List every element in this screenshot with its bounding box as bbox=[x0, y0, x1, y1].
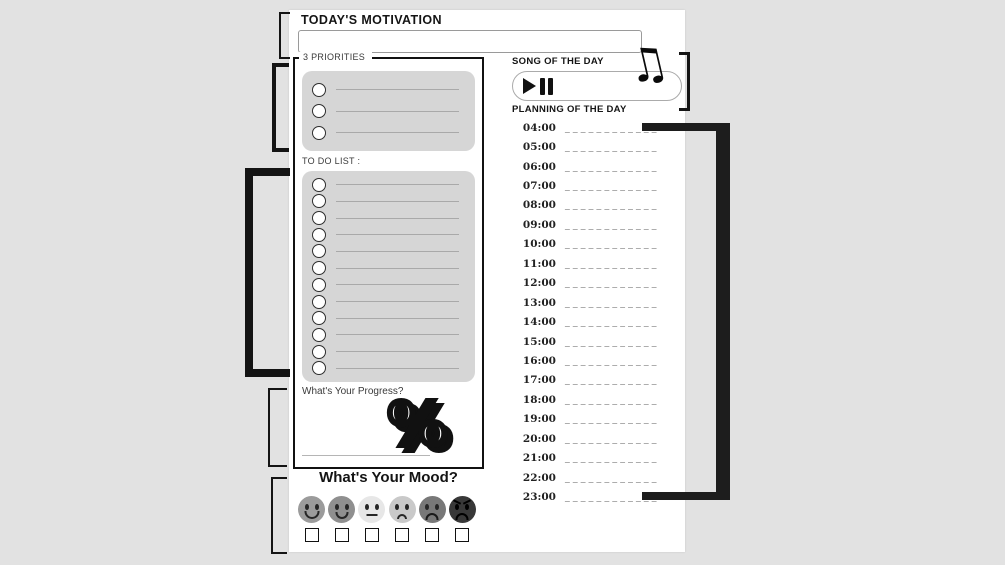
write-line bbox=[336, 334, 459, 335]
time-slot-row: 09:00 _ _ _ _ _ _ _ _ _ _ _ _ bbox=[518, 215, 657, 234]
time-label: 15:00 bbox=[518, 336, 556, 348]
todo-circle[interactable] bbox=[312, 361, 326, 375]
eye-icon bbox=[425, 504, 429, 511]
todo-row bbox=[312, 361, 465, 375]
write-line bbox=[336, 251, 459, 252]
eye-icon bbox=[435, 504, 439, 511]
time-slot-row: 17:00 _ _ _ _ _ _ _ _ _ _ _ _ bbox=[518, 371, 657, 390]
mood-option[interactable] bbox=[389, 496, 416, 542]
eye-icon bbox=[375, 504, 379, 511]
todo-row bbox=[312, 244, 465, 258]
priority-row bbox=[312, 104, 465, 118]
eye-icon bbox=[305, 504, 309, 511]
todo-circle[interactable] bbox=[312, 244, 326, 258]
write-line bbox=[336, 234, 459, 235]
time-slot-row: 22:00 _ _ _ _ _ _ _ _ _ _ _ _ bbox=[518, 468, 657, 487]
time-label: 16:00 bbox=[518, 355, 556, 367]
write-line bbox=[336, 368, 459, 369]
todo-circle[interactable] bbox=[312, 261, 326, 275]
eyebrow-icon bbox=[453, 499, 461, 505]
bracket-planning bbox=[642, 123, 730, 500]
eye-icon bbox=[395, 504, 399, 511]
eye-icon bbox=[345, 504, 349, 511]
time-slot-row: 14:00 _ _ _ _ _ _ _ _ _ _ _ _ bbox=[518, 312, 657, 331]
todo-row bbox=[312, 211, 465, 225]
mood-option[interactable] bbox=[328, 496, 355, 542]
mood-option[interactable] bbox=[298, 496, 325, 542]
time-label: 13:00 bbox=[518, 297, 556, 309]
todo-box bbox=[302, 171, 475, 382]
todo-row bbox=[312, 278, 465, 292]
todo-row bbox=[312, 178, 465, 192]
eye-icon bbox=[465, 504, 469, 511]
todo-row bbox=[312, 194, 465, 208]
todo-circle[interactable] bbox=[312, 194, 326, 208]
eye-icon bbox=[405, 504, 409, 511]
time-slot-row: 16:00 _ _ _ _ _ _ _ _ _ _ _ _ bbox=[518, 351, 657, 370]
mouth-icon bbox=[366, 514, 377, 516]
song-title: SONG OF THE DAY bbox=[512, 56, 604, 67]
eye-icon bbox=[335, 504, 339, 511]
write-line bbox=[336, 284, 459, 285]
mood-face-icon[interactable] bbox=[389, 496, 416, 523]
percent-icon: % % bbox=[388, 389, 478, 465]
time-slot-row: 20:00 _ _ _ _ _ _ _ _ _ _ _ _ bbox=[518, 429, 657, 448]
time-slot-row: 19:00 _ _ _ _ _ _ _ _ _ _ _ _ bbox=[518, 410, 657, 429]
todo-row bbox=[312, 328, 465, 342]
mood-row bbox=[298, 496, 476, 542]
todo-circle[interactable] bbox=[312, 211, 326, 225]
priority-row bbox=[312, 126, 465, 140]
todo-circle[interactable] bbox=[312, 228, 326, 242]
mood-checkbox[interactable] bbox=[425, 528, 439, 542]
mood-title: What's Your Mood? bbox=[293, 469, 484, 486]
todo-row bbox=[312, 311, 465, 325]
todo-circle[interactable] bbox=[312, 328, 326, 342]
time-label: 18:00 bbox=[518, 394, 556, 406]
time-label: 09:00 bbox=[518, 219, 556, 231]
write-line bbox=[336, 301, 459, 302]
mood-option[interactable] bbox=[449, 496, 476, 542]
time-slot-row: 10:00 _ _ _ _ _ _ _ _ _ _ _ _ bbox=[518, 235, 657, 254]
mouth-icon bbox=[304, 511, 319, 519]
todo-row bbox=[312, 261, 465, 275]
write-line bbox=[336, 351, 459, 352]
write-line bbox=[336, 201, 459, 202]
mood-option[interactable] bbox=[358, 496, 385, 542]
write-line bbox=[336, 268, 459, 269]
time-label: 19:00 bbox=[518, 413, 556, 425]
time-slot-row: 04:00 _ _ _ _ _ _ _ _ _ _ _ _ bbox=[518, 118, 657, 137]
todo-circle[interactable] bbox=[312, 178, 326, 192]
time-slot-row: 05:00 _ _ _ _ _ _ _ _ _ _ _ _ bbox=[518, 137, 657, 156]
mood-checkbox[interactable] bbox=[365, 528, 379, 542]
time-slot-row: 23:00 _ _ _ _ _ _ _ _ _ _ _ _ bbox=[518, 487, 657, 506]
bracket-smart-goals bbox=[272, 63, 289, 152]
time-label: 05:00 bbox=[518, 141, 556, 153]
mood-checkbox[interactable] bbox=[305, 528, 319, 542]
time-label: 20:00 bbox=[518, 433, 556, 445]
time-slot-row: 21:00 _ _ _ _ _ _ _ _ _ _ _ _ bbox=[518, 448, 657, 467]
time-label: 22:00 bbox=[518, 472, 556, 484]
todo-row bbox=[312, 295, 465, 309]
eye-icon bbox=[365, 504, 369, 511]
todo-row bbox=[312, 345, 465, 359]
todo-row bbox=[312, 228, 465, 242]
bracket-progress bbox=[268, 388, 287, 467]
planning-title: PLANNING OF THE DAY bbox=[512, 104, 627, 115]
time-slot-row: 06:00 _ _ _ _ _ _ _ _ _ _ _ _ bbox=[518, 157, 657, 176]
motivation-input[interactable] bbox=[298, 30, 642, 53]
time-label: 10:00 bbox=[518, 238, 556, 250]
mouth-icon bbox=[397, 514, 407, 519]
bracket-music bbox=[679, 52, 690, 111]
mouth-icon bbox=[335, 512, 348, 519]
time-slot-row: 08:00 _ _ _ _ _ _ _ _ _ _ _ _ bbox=[518, 196, 657, 215]
time-label: 04:00 bbox=[518, 122, 556, 134]
time-label: 17:00 bbox=[518, 374, 556, 386]
todo-title: TO DO LIST : bbox=[302, 156, 360, 166]
mood-face-icon[interactable] bbox=[419, 496, 446, 523]
mood-face-icon[interactable] bbox=[298, 496, 325, 523]
time-label: 14:00 bbox=[518, 316, 556, 328]
write-line bbox=[336, 318, 459, 319]
mood-checkbox[interactable] bbox=[335, 528, 349, 542]
time-slot-row: 18:00 _ _ _ _ _ _ _ _ _ _ _ _ bbox=[518, 390, 657, 409]
time-label: 23:00 bbox=[518, 491, 556, 503]
mouth-icon bbox=[426, 513, 439, 520]
priority-circle[interactable] bbox=[312, 126, 326, 140]
mood-face-icon[interactable] bbox=[358, 496, 385, 523]
time-label: 11:00 bbox=[518, 258, 556, 270]
planner-page: TODAY'S MOTIVATION 3 PRIORITIES TO DO LI… bbox=[289, 10, 685, 552]
bracket-motivation-quote bbox=[279, 12, 290, 59]
priority-circle[interactable] bbox=[312, 104, 326, 118]
bracket-mood bbox=[271, 477, 287, 554]
mood-face-icon[interactable] bbox=[328, 496, 355, 523]
mood-checkbox[interactable] bbox=[455, 528, 469, 542]
motivation-title: TODAY'S MOTIVATION bbox=[301, 13, 442, 27]
todo-circle[interactable] bbox=[312, 295, 326, 309]
mood-option[interactable] bbox=[419, 496, 446, 542]
bracket-tasks bbox=[245, 168, 290, 377]
time-slot-row: 12:00 _ _ _ _ _ _ _ _ _ _ _ _ bbox=[518, 274, 657, 293]
mood-checkbox[interactable] bbox=[395, 528, 409, 542]
write-line bbox=[336, 132, 459, 133]
todo-circle[interactable] bbox=[312, 278, 326, 292]
mouth-icon bbox=[456, 513, 469, 520]
eye-icon bbox=[315, 504, 319, 511]
play-icon[interactable] bbox=[523, 78, 536, 94]
planning-slots: 04:00 _ _ _ _ _ _ _ _ _ _ _ _ 05:00 _ _ … bbox=[518, 118, 657, 507]
time-label: 06:00 bbox=[518, 161, 556, 173]
priorities-box bbox=[302, 71, 475, 151]
priority-circle[interactable] bbox=[312, 83, 326, 97]
write-line bbox=[336, 184, 459, 185]
write-line bbox=[336, 218, 459, 219]
time-label: 08:00 bbox=[518, 199, 556, 211]
time-slot-row: 15:00 _ _ _ _ _ _ _ _ _ _ _ _ bbox=[518, 332, 657, 351]
write-line bbox=[336, 111, 459, 112]
time-slot-row: 07:00 _ _ _ _ _ _ _ _ _ _ _ _ bbox=[518, 176, 657, 195]
todo-circle[interactable] bbox=[312, 345, 326, 359]
priorities-title: 3 PRIORITIES bbox=[299, 52, 372, 62]
time-label: 12:00 bbox=[518, 277, 556, 289]
priority-row bbox=[312, 83, 465, 97]
mood-face-icon[interactable] bbox=[449, 496, 476, 523]
time-label: 07:00 bbox=[518, 180, 556, 192]
time-slot-row: 13:00 _ _ _ _ _ _ _ _ _ _ _ _ bbox=[518, 293, 657, 312]
pause-icon[interactable] bbox=[540, 78, 553, 95]
time-label: 21:00 bbox=[518, 452, 556, 464]
time-slot-row: 11:00 _ _ _ _ _ _ _ _ _ _ _ _ bbox=[518, 254, 657, 273]
left-column-frame: 3 PRIORITIES TO DO LIST : bbox=[293, 57, 484, 469]
todo-circle[interactable] bbox=[312, 311, 326, 325]
write-line bbox=[336, 89, 459, 90]
